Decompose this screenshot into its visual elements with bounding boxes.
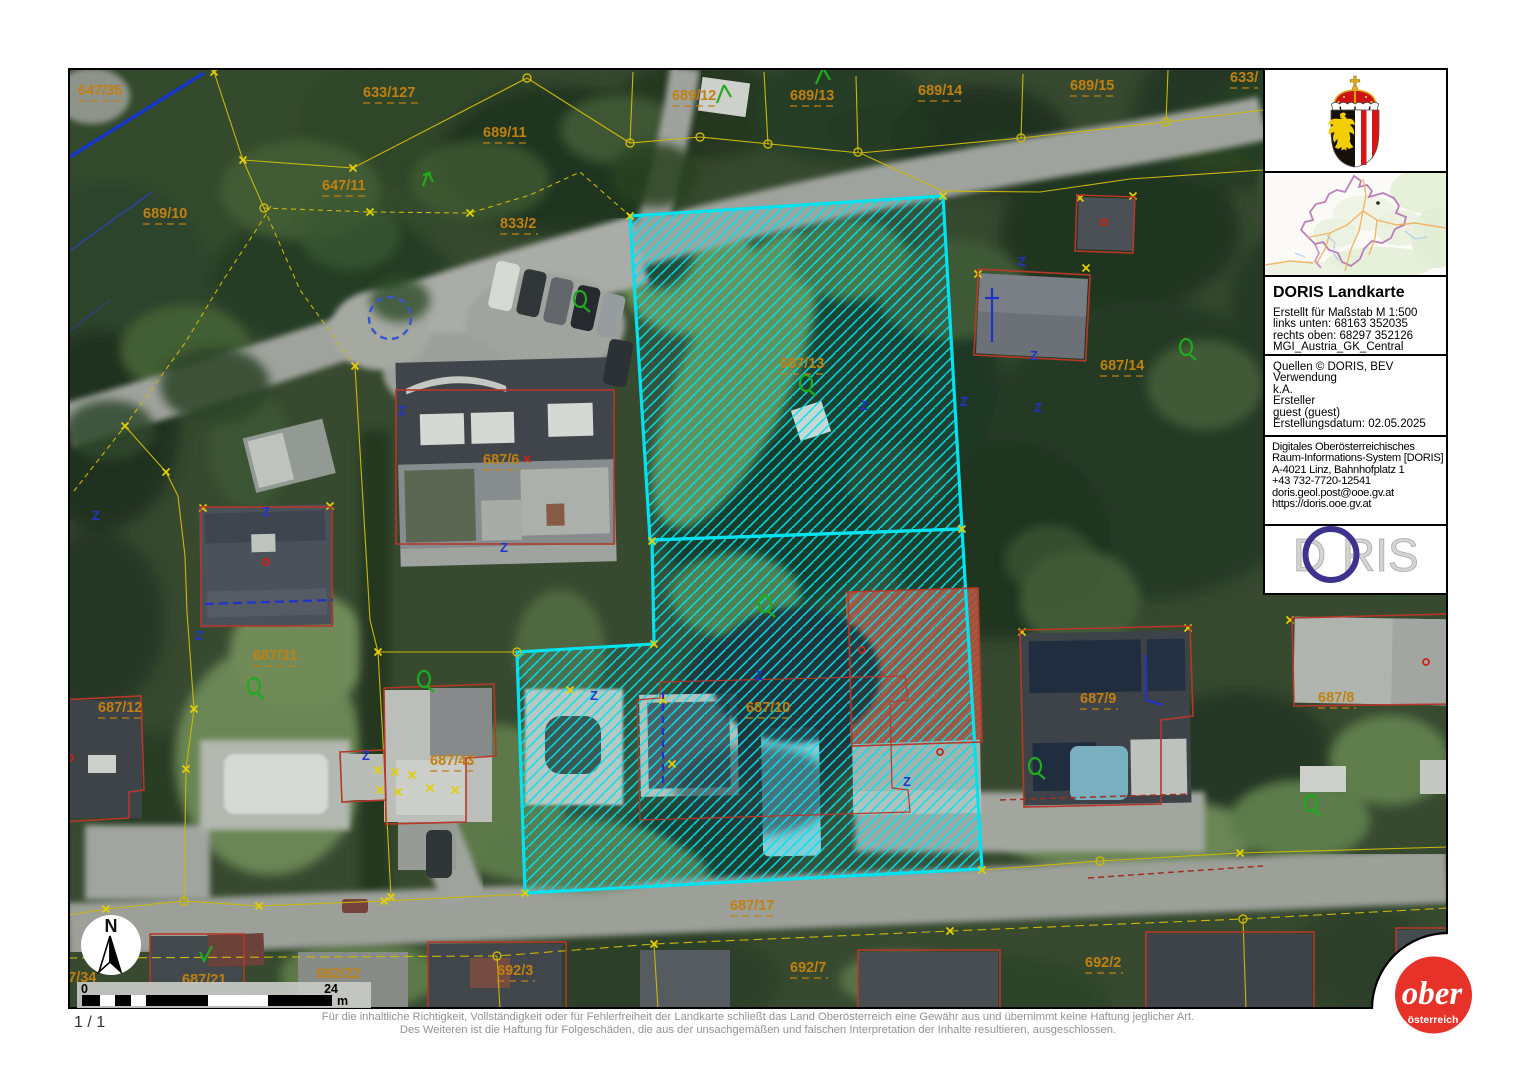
svg-text:687/31: 687/31 <box>253 648 297 664</box>
svg-text:Z: Z <box>398 403 406 418</box>
svg-text:687/10: 687/10 <box>746 700 790 716</box>
svg-text:687/8: 687/8 <box>1318 690 1354 706</box>
svg-text:689/13: 689/13 <box>790 88 834 104</box>
svg-text:689/15: 689/15 <box>1070 78 1114 94</box>
svg-text:Z: Z <box>1018 254 1026 269</box>
svg-text:Z: Z <box>92 508 100 523</box>
svg-text:687/14: 687/14 <box>1100 358 1144 374</box>
svg-text:689/11: 689/11 <box>483 125 527 141</box>
svg-text:689/14: 689/14 <box>918 83 962 99</box>
svg-text:Z: Z <box>195 628 203 643</box>
svg-text:0: 0 <box>81 982 88 996</box>
svg-text:833/2: 833/2 <box>500 216 536 232</box>
svg-text:Z: Z <box>860 398 868 413</box>
svg-text:687/9: 687/9 <box>1080 691 1116 707</box>
svg-text:633/127: 633/127 <box>363 85 415 101</box>
svg-text:692/2: 692/2 <box>1085 955 1121 971</box>
svg-text:Z: Z <box>362 748 370 763</box>
svg-text:24: 24 <box>324 982 338 996</box>
svg-text:692/3: 692/3 <box>497 963 533 979</box>
svg-text:687/43: 687/43 <box>430 753 474 769</box>
svg-text:Z: Z <box>262 504 270 519</box>
svg-text:ober: ober <box>1402 976 1464 1012</box>
svg-text:689/10: 689/10 <box>143 206 187 222</box>
svg-text:Z: Z <box>903 774 911 789</box>
svg-text:647/11: 647/11 <box>322 178 366 194</box>
svg-text:687/6: 687/6 <box>483 452 519 468</box>
svg-text:Z: Z <box>586 1066 594 1080</box>
svg-text:N: N <box>105 916 118 936</box>
svg-text:633/: 633/ <box>1230 70 1258 86</box>
svg-text:689/12: 689/12 <box>672 88 716 104</box>
svg-text:m: m <box>337 994 348 1008</box>
svg-text:687/12: 687/12 <box>98 700 142 716</box>
svg-text:647/35: 647/35 <box>78 83 122 99</box>
svg-text:Z: Z <box>590 688 598 703</box>
svg-text:Z: Z <box>960 394 968 409</box>
svg-text:692/22: 692/22 <box>316 966 360 982</box>
svg-text:Z: Z <box>755 668 763 683</box>
svg-text:687/13: 687/13 <box>780 356 824 372</box>
svg-text:Z: Z <box>500 540 508 555</box>
svg-text:Z: Z <box>1034 400 1042 415</box>
svg-text:687/17: 687/17 <box>730 898 774 914</box>
svg-text:Z: Z <box>1030 348 1038 363</box>
svg-text:692/7: 692/7 <box>790 960 826 976</box>
